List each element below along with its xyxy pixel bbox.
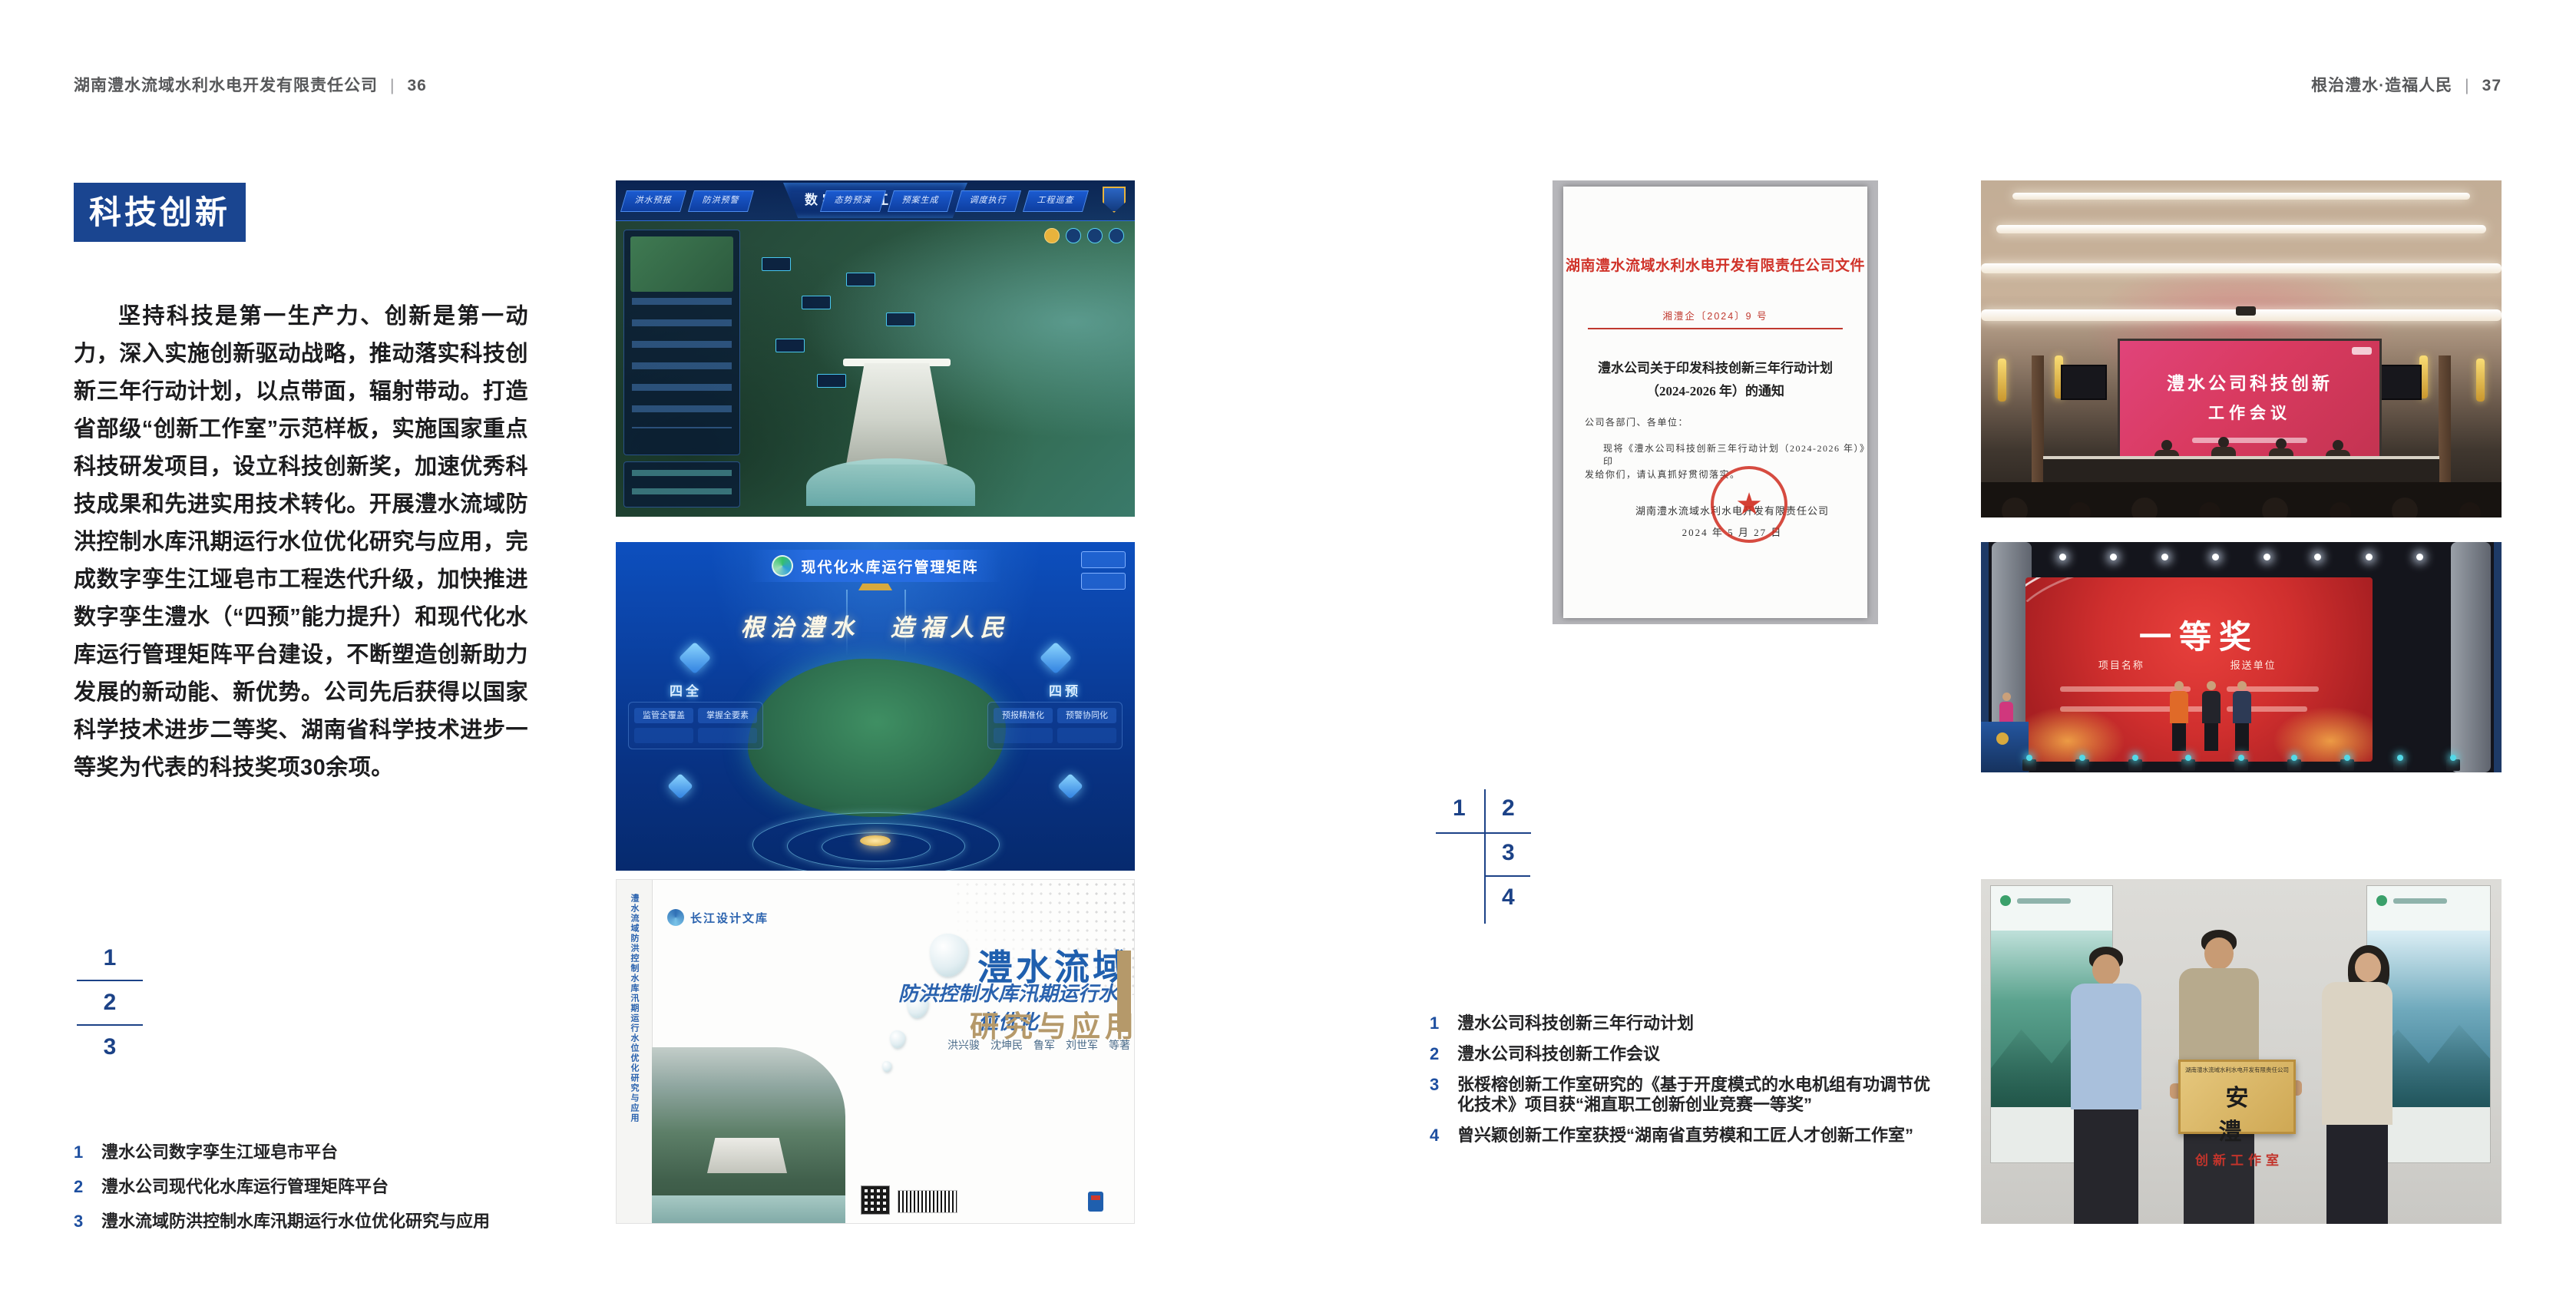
caption-text: 澧水流域防洪控制水库汛期运行水位优化研究与应用 bbox=[101, 1212, 490, 1232]
node-icon bbox=[1040, 642, 1072, 674]
head-table bbox=[2043, 456, 2439, 485]
moving-light bbox=[2075, 759, 2089, 771]
platform-button bbox=[1081, 573, 1126, 590]
cover-accent-bar bbox=[1117, 951, 1131, 1032]
award-column-label: 项目名称 bbox=[2098, 657, 2144, 672]
tool-icon bbox=[1066, 228, 1081, 243]
golden-glow bbox=[2273, 706, 2373, 762]
banner-header bbox=[1991, 886, 2112, 931]
figure-matrix-platform: 现代化水库运行管理矩阵 根治澧水 造福人民 四全 监管全覆盖 掌握全要素 四预 … bbox=[616, 542, 1135, 871]
stage-light bbox=[2314, 554, 2321, 560]
dashboard-tab: 态势预演 bbox=[820, 190, 886, 212]
document-number: 湘澧企〔2024〕9 号 bbox=[1563, 308, 1867, 322]
audience-head bbox=[2459, 502, 2481, 517]
node-pill bbox=[698, 728, 757, 743]
map-marker bbox=[775, 339, 805, 352]
audience bbox=[1981, 482, 2502, 517]
node-panel: 预报精准化 预警协同化 bbox=[987, 702, 1123, 749]
audience-head bbox=[2002, 498, 2028, 517]
caption-text: 澧水公司科技创新工作会议 bbox=[1457, 1044, 1933, 1064]
section-title: 科技创新 bbox=[89, 194, 230, 230]
audience-head bbox=[2330, 502, 2351, 517]
figure-key-number-1: 1 bbox=[77, 943, 143, 974]
caption-row: 1澧水公司数字孪生江垭皂市平台 bbox=[74, 1142, 490, 1162]
screen-title-line1: 澧水公司科技创新 bbox=[2120, 369, 2379, 395]
document-title-line2: （2024-2026 年）的通知 bbox=[1563, 380, 1867, 399]
figure-key-number-1: 1 bbox=[1453, 795, 1466, 822]
official-seal-icon: ★ bbox=[1711, 466, 1787, 543]
stage-light bbox=[2212, 554, 2219, 560]
tailwater bbox=[806, 458, 975, 506]
figure-official-document: 湖南澧水流域水利水电开发有限责任公司文件 湘澧企〔2024〕9 号 澧水公司关于… bbox=[1553, 180, 1878, 624]
platform-header: 现代化水库运行管理矩阵 bbox=[749, 550, 1002, 582]
stage-light bbox=[2161, 554, 2168, 560]
caption-number: 3 bbox=[1430, 1075, 1457, 1095]
moving-light bbox=[2128, 759, 2142, 771]
series-name: 长江设计文库 bbox=[690, 910, 769, 926]
data-rows bbox=[632, 470, 732, 499]
wall-tv bbox=[2376, 365, 2422, 400]
tool-icon bbox=[1109, 228, 1124, 243]
figure-key-number-3: 3 bbox=[1502, 840, 1515, 866]
publisher-logo-icon bbox=[1088, 1192, 1103, 1212]
moving-light bbox=[2446, 759, 2460, 771]
platform-slogan: 根治澧水 造福人民 bbox=[616, 608, 1135, 643]
plaque-title: 安 澧 bbox=[2181, 1079, 2293, 1146]
node-icon bbox=[667, 773, 693, 799]
page-number-left: 36 bbox=[407, 77, 426, 94]
water-droplet bbox=[882, 1061, 891, 1072]
water bbox=[652, 1195, 845, 1224]
light-beam bbox=[904, 590, 906, 656]
caption-text: 曾兴颖创新工作室获授“湖南省直劳模和工匠人才创新工作室” bbox=[1457, 1126, 1933, 1146]
page-header-right: 根治澧水·造福人民|37 bbox=[2311, 73, 2502, 96]
caption-row: 4曾兴颖创新工作室获授“湖南省直劳模和工匠人才创新工作室” bbox=[1430, 1126, 1933, 1146]
dashboard-tab: 调度执行 bbox=[955, 190, 1021, 212]
data-rows bbox=[632, 298, 732, 428]
basin-terrain-map bbox=[748, 659, 1006, 817]
moving-head-lights bbox=[2022, 759, 2460, 771]
platform-button bbox=[1081, 551, 1126, 568]
spine-title: 澧水流域防洪控制水库汛期运行水位优化研究与应用 bbox=[628, 894, 640, 1123]
caption-number: 4 bbox=[1430, 1126, 1457, 1146]
qr-code bbox=[861, 1185, 890, 1215]
figure-book-cover: 澧水流域防洪控制水库汛期运行水位优化研究与应用 长江设计文库 澧水流域 防洪控制… bbox=[616, 879, 1135, 1224]
figure-key-divider bbox=[1484, 875, 1530, 877]
caption-row: 3张桵榕创新工作室研究的《基于开度模式的水电机组有功调节优化技术》项目获“湘直职… bbox=[1430, 1075, 1933, 1115]
company-name: 湖南澧水流域水利水电开发有限责任公司 bbox=[74, 77, 378, 94]
banner-text-bar bbox=[2017, 898, 2071, 904]
screen-title-line2: 工作会议 bbox=[2120, 401, 2379, 424]
caption-text: 张桵榕创新工作室研究的《基于开度模式的水电机组有功调节优化技术》项目获“湘直职工… bbox=[1457, 1075, 1933, 1115]
figure-key-right: 1 2 3 4 bbox=[1436, 789, 1536, 926]
body-paragraph: 坚持科技是第一生产力、创新是第一动力，深入实施创新驱动战略，推动落实科技创新三年… bbox=[74, 298, 528, 787]
map-marker bbox=[846, 273, 875, 286]
innovation-studio-plaque: 湖南澧水流域水利水电开发有限责任公司 安 澧 创新工作室 bbox=[2178, 1060, 2296, 1134]
dashboard-tab: 防洪预警 bbox=[688, 190, 754, 212]
audience-head bbox=[2392, 498, 2418, 517]
dashboard-side-panel bbox=[623, 461, 740, 508]
caption-row: 2澧水公司科技创新工作会议 bbox=[1430, 1044, 1933, 1064]
page-header-left: 湖南澧水流域水利水电开发有限责任公司|36 bbox=[74, 73, 427, 96]
captions-left: 1澧水公司数字孪生江垭皂市平台 2澧水公司现代化水库运行管理矩阵平台 3澧水流域… bbox=[74, 1142, 490, 1246]
map-marker bbox=[802, 296, 831, 309]
audience-head bbox=[2131, 498, 2158, 517]
stage-edge bbox=[2494, 542, 2502, 772]
podium bbox=[1981, 722, 2029, 772]
plaque-subtitle: 创新工作室 bbox=[2181, 1149, 2293, 1169]
caption-text: 澧水公司科技创新三年行动计划 bbox=[1457, 1013, 1933, 1033]
document-body-line: 发给你们，请认真抓好贯彻落实。 bbox=[1585, 468, 1741, 481]
series-logo-row: 长江设计文库 bbox=[667, 909, 769, 926]
audience-head bbox=[2262, 498, 2288, 517]
ceiling-light bbox=[2012, 193, 2471, 200]
plaque-header: 湖南澧水流域水利水电开发有限责任公司 bbox=[2181, 1066, 2293, 1074]
captions-right: 1澧水公司科技创新三年行动计划 2澧水公司科技创新工作会议 3张桵榕创新工作室研… bbox=[1430, 1013, 1933, 1156]
node-label: 四全 bbox=[670, 680, 702, 699]
award-presenter bbox=[2201, 681, 2221, 751]
map-marker bbox=[817, 374, 846, 388]
figure-key-divider bbox=[1484, 789, 1486, 924]
dam bbox=[707, 1138, 787, 1173]
node-pill bbox=[1057, 728, 1116, 743]
ceiling-light bbox=[1996, 225, 2485, 233]
figure-key-left: 1 2 3 bbox=[77, 943, 143, 1063]
figure-digital-twin-platform: 洪水预报 防洪预警 数字孪生江垭皂市 态势预演 预案生成 调度执行 工程巡查 bbox=[616, 180, 1135, 517]
section-title-block: 科技创新 bbox=[74, 183, 246, 242]
document-body-line: 现将《澧水公司科技创新三年行动计划（2024-2026 年）》印 bbox=[1603, 441, 1867, 468]
node-pill bbox=[994, 728, 1053, 743]
node-pill: 掌握全要素 bbox=[698, 708, 757, 723]
caption-row: 1澧水公司科技创新三年行动计划 bbox=[1430, 1013, 1933, 1033]
book-authors: 洪兴骏 沈坤民 鲁军 刘世军 等著 bbox=[931, 1037, 1135, 1053]
figure-meeting-photo: 澧水公司科技创新 工作会议 bbox=[1981, 180, 2502, 517]
barcode bbox=[898, 1190, 957, 1213]
dashboard-tab: 洪水预报 bbox=[620, 190, 686, 212]
ceiling-light bbox=[1981, 263, 2502, 273]
tool-icon bbox=[1087, 228, 1103, 243]
changjiang-design-logo-icon bbox=[667, 909, 684, 926]
node-icon bbox=[679, 642, 711, 674]
seal-star-icon: ★ bbox=[1735, 489, 1763, 520]
award-recipient bbox=[2232, 681, 2252, 751]
node-pill: 预报精准化 bbox=[994, 708, 1053, 723]
dam bbox=[846, 363, 947, 465]
award-led-screen: 一等奖 项目名称 报送单位 bbox=[2025, 577, 2373, 762]
caption-number: 1 bbox=[1430, 1013, 1457, 1033]
stage-light bbox=[2366, 554, 2373, 560]
banner-text-bar bbox=[2393, 898, 2447, 904]
audience-head bbox=[2199, 502, 2221, 517]
header-separator: | bbox=[378, 77, 407, 94]
document-title-line1: 澧水公司关于印发科技创新三年行动计划 bbox=[1563, 357, 1867, 376]
figure-key-divider bbox=[77, 1024, 143, 1026]
stage-lights bbox=[2059, 548, 2424, 565]
moving-light bbox=[2287, 759, 2301, 771]
page-number-right: 37 bbox=[2482, 77, 2502, 94]
award-title: 一等奖 bbox=[2025, 611, 2373, 658]
node-icon bbox=[1057, 773, 1083, 799]
figure-key-number-3: 3 bbox=[77, 1032, 143, 1063]
document-red-header: 湖南澧水流域水利水电开发有限责任公司文件 bbox=[1563, 254, 1867, 275]
caption-number: 1 bbox=[74, 1142, 101, 1162]
map-marker bbox=[886, 312, 915, 326]
caption-number: 2 bbox=[74, 1177, 101, 1197]
dam-photo bbox=[652, 1047, 845, 1224]
stage-light bbox=[2416, 554, 2423, 560]
caption-number: 2 bbox=[1430, 1044, 1457, 1064]
figure-key-number-4: 4 bbox=[1502, 884, 1515, 911]
map-marker bbox=[762, 257, 791, 271]
ceiling-projector bbox=[2236, 306, 2256, 316]
stage-light bbox=[2264, 554, 2270, 560]
moving-light bbox=[2181, 759, 2195, 771]
caption-row: 2澧水公司现代化水库运行管理矩阵平台 bbox=[74, 1177, 490, 1197]
moving-light bbox=[2340, 759, 2354, 771]
dashboard-side-panel bbox=[623, 230, 740, 455]
dashboard-tab: 预案生成 bbox=[888, 190, 954, 212]
node-label: 四预 bbox=[1049, 680, 1081, 699]
figure-key-divider bbox=[1436, 832, 1531, 834]
award-recipient bbox=[2169, 681, 2189, 751]
stage-light bbox=[2059, 554, 2066, 560]
light-beam bbox=[846, 590, 848, 656]
node-pill bbox=[634, 728, 693, 743]
stage-pillar bbox=[2451, 542, 2491, 772]
banner-header bbox=[2367, 886, 2490, 931]
node-panel: 监管全覆盖 掌握全要素 bbox=[628, 702, 763, 749]
wall-lamp bbox=[1998, 359, 2006, 402]
header-ornament bbox=[858, 584, 892, 590]
award-column-label: 报送单位 bbox=[2230, 657, 2277, 672]
header-separator: | bbox=[2452, 77, 2482, 94]
audience-head bbox=[2069, 502, 2091, 517]
wall-lamp bbox=[2476, 359, 2485, 402]
figure-key-number-2: 2 bbox=[77, 987, 143, 1018]
caption-text: 澧水公司现代化水库运行管理矩阵平台 bbox=[101, 1177, 389, 1197]
figure-plaque-photo: 湖南澧水流域水利水电开发有限责任公司 安 澧 创新工作室 bbox=[1981, 879, 2502, 1224]
node-pill: 监管全覆盖 bbox=[634, 708, 693, 723]
document-page: 湖南澧水流域水利水电开发有限责任公司文件 湘澧企〔2024〕9 号 澧水公司关于… bbox=[1563, 187, 1867, 618]
screen-logo bbox=[2352, 347, 2372, 355]
caption-number: 3 bbox=[74, 1212, 101, 1232]
book-spine: 澧水流域防洪控制水库汛期运行水位优化研究与应用 bbox=[617, 880, 653, 1223]
caption-text: 澧水公司数字孪生江垭皂市平台 bbox=[101, 1142, 338, 1162]
radar-core bbox=[860, 835, 891, 846]
golden-glow bbox=[2025, 706, 2125, 762]
figure-key-number-2: 2 bbox=[1502, 795, 1515, 822]
moving-light bbox=[2393, 759, 2407, 771]
document-red-rule bbox=[1588, 328, 1844, 329]
dashboard-tabs-left: 洪水预报 防洪预警 bbox=[623, 190, 759, 212]
wall-tv bbox=[2061, 365, 2107, 400]
document-salutation: 公司各部门、各单位： bbox=[1585, 415, 1688, 428]
moving-light bbox=[2234, 759, 2248, 771]
dashboard-tab: 工程巡查 bbox=[1023, 190, 1089, 212]
page-motto: 根治澧水·造福人民 bbox=[2311, 77, 2452, 94]
caption-row: 3澧水流域防洪控制水库汛期运行水位优化研究与应用 bbox=[74, 1212, 490, 1232]
figure-award-ceremony-photo: 一等奖 项目名称 报送单位 bbox=[1981, 542, 2502, 772]
dashboard-tool-icons bbox=[1044, 228, 1124, 243]
moving-light bbox=[2022, 759, 2036, 771]
stage-light bbox=[2110, 554, 2117, 560]
node-pill: 预警协同化 bbox=[1057, 708, 1116, 723]
lishui-company-logo-icon bbox=[772, 555, 793, 577]
map-thumbnail bbox=[630, 236, 733, 292]
tool-icon bbox=[1044, 228, 1060, 243]
platform-title: 现代化水库运行管理矩阵 bbox=[801, 556, 978, 577]
dashboard-tabs-right: 态势预演 预案生成 调度执行 工程巡查 bbox=[823, 190, 1093, 212]
figure-key-divider bbox=[77, 980, 143, 981]
